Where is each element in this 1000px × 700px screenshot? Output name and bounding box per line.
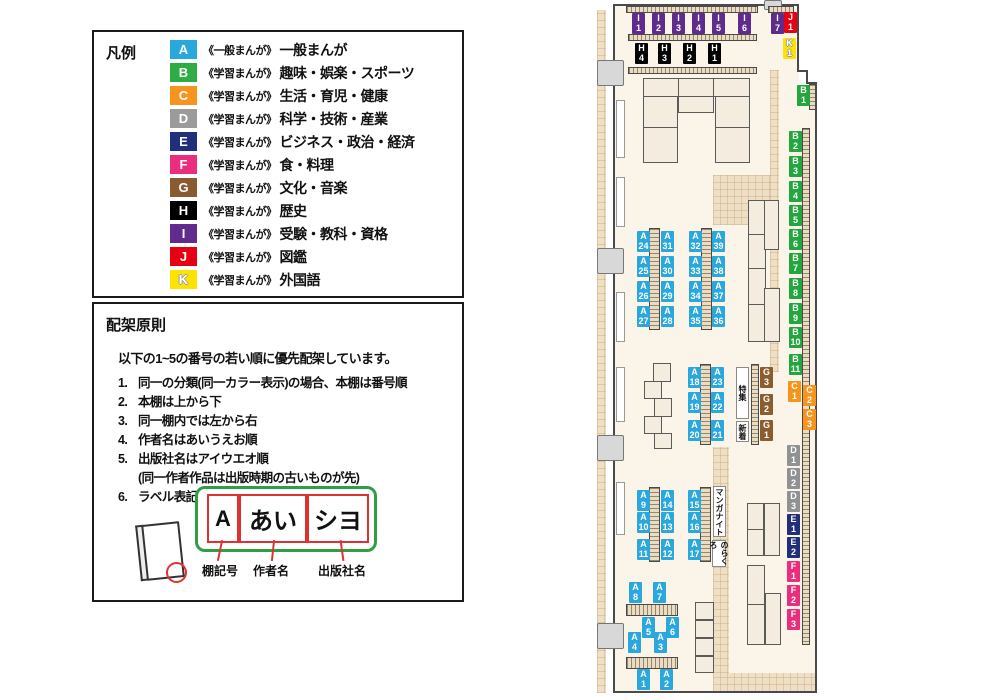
shelf-label-A24: A24 — [637, 231, 650, 252]
shelf-label-G2: G2 — [760, 394, 773, 415]
shelf-label-number: 1 — [801, 96, 806, 106]
table — [764, 503, 780, 556]
bookshelf — [751, 364, 759, 445]
shelf-label-number: 29 — [662, 292, 672, 302]
wall-shelf — [809, 84, 816, 110]
shelf-label-number: 4 — [793, 192, 798, 202]
bench — [616, 482, 625, 535]
shelf-label-number: 3 — [791, 620, 796, 630]
shelf-label-number: 30 — [662, 267, 672, 277]
shelf-label-C3: C3 — [803, 409, 816, 430]
shelf-label-A1: A1 — [637, 669, 650, 690]
shelf-label-number: 3 — [793, 167, 798, 177]
shelf-label-number: 1 — [641, 680, 646, 690]
shelf-label-number: 17 — [689, 550, 699, 560]
bookshelf — [701, 228, 712, 330]
shelf-label-number: 18 — [689, 378, 699, 388]
shelf-label-H3: H3 — [658, 43, 671, 64]
shelf-label-number: 9 — [793, 314, 798, 324]
map-info-box: 新着 — [736, 421, 749, 442]
shelf-label-D3: D3 — [787, 491, 800, 512]
shelf-label-A3: A3 — [654, 632, 667, 653]
table — [764, 288, 780, 342]
shelf-label-number: 1 — [764, 431, 769, 441]
shelf-label-number: 36 — [713, 317, 723, 327]
shelf-label-B2: B2 — [789, 131, 802, 152]
shelf-label-number: 16 — [689, 523, 699, 533]
table — [747, 565, 765, 605]
shelf-label-number: 11 — [791, 365, 801, 375]
wall-shelf — [628, 34, 757, 41]
shelf-label-number: 1 — [791, 456, 796, 466]
shelf-label-A7: A7 — [653, 582, 666, 603]
shelf-label-number: 2 — [793, 142, 798, 152]
shelf-label-A31: A31 — [661, 231, 674, 252]
shelf-label-A2: A2 — [660, 669, 673, 690]
shelf-label-number: 2 — [764, 405, 769, 415]
shelf-label-number: 1 — [792, 392, 797, 402]
shelf-label-B9: B9 — [789, 303, 802, 324]
map-info-text: マンガナイト — [714, 488, 725, 536]
bookshelf — [700, 364, 711, 445]
shelf-label-number: 3 — [807, 420, 812, 430]
shelf-label-A22: A22 — [711, 392, 724, 413]
shelf-label-J1: J1 — [784, 12, 797, 33]
shelf-label-C1: C1 — [788, 381, 801, 402]
shelf-label-number: 11 — [639, 550, 649, 560]
shelf-label-A34: A34 — [689, 281, 702, 302]
table — [678, 96, 714, 113]
shelf-label-A4: A4 — [628, 632, 641, 653]
shelf-label-B7: B7 — [789, 253, 802, 274]
map-info-box: 特集 — [736, 367, 749, 419]
shelf-label-I3: I3 — [672, 13, 685, 34]
shelf-label-number: 3 — [658, 643, 663, 653]
shelf-label-H4: H4 — [635, 43, 648, 64]
shelf-label-number: 35 — [690, 317, 700, 327]
table — [765, 593, 781, 645]
shelf-label-number: 8 — [793, 289, 798, 299]
shelf-label-A25: A25 — [637, 256, 650, 277]
shelf-label-A6: A6 — [666, 617, 679, 638]
shelf-label-B10: B10 — [789, 327, 802, 348]
shelf-label-number: 8 — [633, 593, 638, 603]
shelf-label-A16: A16 — [688, 512, 701, 533]
bookshelf — [649, 487, 660, 562]
door — [597, 623, 624, 649]
shelf-label-I5: I5 — [712, 13, 725, 34]
shelf-label-number: 10 — [790, 338, 800, 348]
table — [747, 604, 765, 645]
shelf-label-A14: A14 — [661, 490, 674, 511]
shelf-label-A29: A29 — [661, 281, 674, 302]
shelf-label-number: 6 — [670, 628, 675, 638]
shelf-label-E2: E2 — [787, 537, 800, 558]
bookshelf — [626, 657, 678, 669]
shelf-label-I7: I7 — [771, 13, 784, 34]
bench — [616, 177, 625, 227]
shelf-label-number: 23 — [712, 378, 722, 388]
shelf-label-D1: D1 — [787, 445, 800, 466]
table — [678, 78, 714, 97]
shelf-label-A33: A33 — [689, 256, 702, 277]
shelf-label-I6: I6 — [738, 13, 751, 34]
table — [653, 363, 671, 382]
shelf-label-number: 27 — [638, 317, 648, 327]
shelf-label-number: 14 — [662, 501, 672, 511]
shelf-label-number: 2 — [664, 680, 669, 690]
shelf-label-number: 3 — [662, 54, 667, 64]
door — [597, 60, 624, 86]
shelf-label-A15: A15 — [688, 490, 701, 511]
shelf-label-A38: A38 — [712, 256, 725, 277]
table — [747, 503, 764, 530]
shelf-label-B6: B6 — [789, 229, 802, 250]
shelf-label-D2: D2 — [787, 468, 800, 489]
shelf-label-number: 7 — [793, 264, 798, 274]
shelf-label-A32: A32 — [689, 231, 702, 252]
wall — [613, 691, 817, 693]
shelf-label-B8: B8 — [789, 278, 802, 299]
shelf-label-I1: I1 — [632, 13, 645, 34]
shelf-label-A27: A27 — [637, 306, 650, 327]
table — [643, 96, 678, 128]
table — [644, 416, 662, 434]
shelf-label-number: 4 — [696, 24, 701, 34]
shelf-label-I2: I2 — [652, 13, 665, 34]
shelf-label-number: 9 — [641, 501, 646, 511]
shelf-label-E1: E1 — [787, 514, 800, 535]
shelf-label-number: 28 — [662, 317, 672, 327]
shelf-label-F1: F1 — [787, 561, 800, 582]
shelf-label-number: 7 — [775, 24, 780, 34]
bench — [616, 367, 625, 422]
table — [695, 656, 714, 673]
shelf-label-number: 20 — [689, 431, 699, 441]
shelf-label-number: 6 — [742, 24, 747, 34]
shelf-label-number: 5 — [793, 216, 798, 226]
shelf-label-G3: G3 — [760, 367, 773, 388]
shelf-label-number: 24 — [638, 242, 648, 252]
shelf-label-G1: G1 — [760, 420, 773, 441]
shelf-label-A30: A30 — [661, 256, 674, 277]
bookshelf — [649, 228, 660, 330]
table — [643, 127, 678, 163]
shelf-label-A12: A12 — [661, 539, 674, 560]
shelf-label-H1: H1 — [708, 43, 721, 64]
door — [597, 248, 624, 274]
shelf-label-A28: A28 — [661, 306, 674, 327]
floor-map-page: 凡例 A《一般まんが》一般まんがB《学習まんが》趣味・娯楽・スポーツC《学習まん… — [0, 0, 1000, 700]
shelf-label-B1: B1 — [797, 85, 810, 106]
table — [695, 620, 714, 638]
shelf-label-A9: A9 — [637, 490, 650, 511]
shelf-label-number: 7 — [657, 593, 662, 603]
shelf-label-A37: A37 — [712, 281, 725, 302]
table — [747, 529, 764, 556]
shelf-label-A23: A23 — [711, 367, 724, 388]
table — [715, 96, 750, 128]
door — [597, 435, 624, 461]
table — [695, 602, 714, 620]
shelf-label-number: 34 — [690, 292, 700, 302]
shelf-label-number: 1 — [791, 525, 796, 535]
walkway — [713, 673, 816, 692]
floor-map: I1I2I3I4I5I6I7J1K1H4H3H2H1B1B2B3B4B5B6B7… — [0, 0, 1000, 700]
shelf-label-A8: A8 — [629, 582, 642, 603]
shelf-label-number: 2 — [791, 548, 796, 558]
shelf-label-number: 3 — [791, 502, 796, 512]
shelf-label-A17: A17 — [688, 539, 701, 560]
table — [654, 433, 672, 449]
shelf-label-B11: B11 — [789, 354, 802, 375]
shelf-label-A19: A19 — [688, 392, 701, 413]
shelf-label-number: 38 — [713, 267, 723, 277]
map-info-text: のらくろ — [708, 541, 730, 566]
wall-shelf — [628, 67, 757, 74]
shelf-label-number: 31 — [662, 242, 672, 252]
shelf-label-number: 3 — [764, 378, 769, 388]
shelf-label-A35: A35 — [689, 306, 702, 327]
shelf-label-number: 1 — [788, 23, 793, 33]
shelf-label-number: 2 — [807, 396, 812, 406]
shelf-label-B5: B5 — [789, 205, 802, 226]
map-info-text: 新着 — [737, 424, 748, 440]
bench — [616, 100, 625, 158]
shelf-label-number: 26 — [638, 292, 648, 302]
shelf-label-number: 15 — [689, 501, 699, 511]
map-info-box: マンガナイト — [713, 486, 726, 537]
shelf-label-B3: B3 — [789, 156, 802, 177]
shelf-label-K1: K1 — [783, 38, 796, 59]
table — [764, 200, 779, 250]
shelf-label-number: 1 — [787, 49, 792, 59]
table — [644, 381, 662, 399]
shelf-label-number: 19 — [689, 403, 699, 413]
shelf-label-A26: A26 — [637, 281, 650, 302]
wall — [797, 4, 799, 72]
shelf-label-number: 5 — [716, 24, 721, 34]
shelf-label-number: 1 — [791, 572, 796, 582]
shelf-label-number: 12 — [662, 550, 672, 560]
shelf-label-A18: A18 — [688, 367, 701, 388]
shelf-label-B4: B4 — [789, 181, 802, 202]
map-info-text: 特集 — [737, 385, 748, 401]
shelf-label-A10: A10 — [637, 512, 650, 533]
shelf-label-H2: H2 — [683, 43, 696, 64]
shelf-label-number: 2 — [791, 479, 796, 489]
shelf-label-number: 32 — [690, 242, 700, 252]
shelf-label-A39: A39 — [712, 231, 725, 252]
table — [695, 638, 714, 656]
shelf-label-I4: I4 — [692, 13, 705, 34]
shelf-label-F3: F3 — [787, 609, 800, 630]
shelf-label-F2: F2 — [787, 585, 800, 606]
shelf-label-number: 37 — [713, 292, 723, 302]
shelf-label-number: 25 — [638, 267, 648, 277]
table — [713, 78, 750, 97]
shelf-label-number: 1 — [712, 54, 717, 64]
wall-shelf — [626, 6, 758, 13]
shelf-label-A13: A13 — [661, 512, 674, 533]
shelf-label-number: 22 — [712, 403, 722, 413]
shelf-label-number: 21 — [712, 431, 722, 441]
shelf-label-number: 13 — [662, 523, 672, 533]
shelf-label-number: 2 — [791, 596, 796, 606]
bookshelf — [626, 604, 678, 616]
shelf-label-number: 2 — [656, 24, 661, 34]
shelf-label-number: 4 — [632, 643, 637, 653]
shelf-label-A11: A11 — [637, 539, 650, 560]
shelf-label-A21: A21 — [711, 420, 724, 441]
shelf-label-number: 2 — [687, 54, 692, 64]
map-info-box: のらくろ — [712, 540, 726, 567]
shelf-label-number: 10 — [638, 523, 648, 533]
shelf-label-number: 39 — [713, 242, 723, 252]
shelf-label-number: 3 — [676, 24, 681, 34]
shelf-label-number: 1 — [636, 24, 641, 34]
table — [643, 78, 679, 97]
shelf-label-number: 5 — [646, 628, 651, 638]
walkway — [597, 10, 606, 693]
bench — [616, 292, 625, 342]
wall — [613, 4, 615, 693]
table — [715, 127, 750, 163]
shelf-label-number: 4 — [639, 54, 644, 64]
shelf-label-number: 6 — [793, 240, 798, 250]
shelf-label-A20: A20 — [688, 420, 701, 441]
shelf-label-C2: C2 — [803, 385, 816, 406]
shelf-label-A36: A36 — [712, 306, 725, 327]
shelf-label-number: 33 — [690, 267, 700, 277]
table — [654, 398, 672, 417]
